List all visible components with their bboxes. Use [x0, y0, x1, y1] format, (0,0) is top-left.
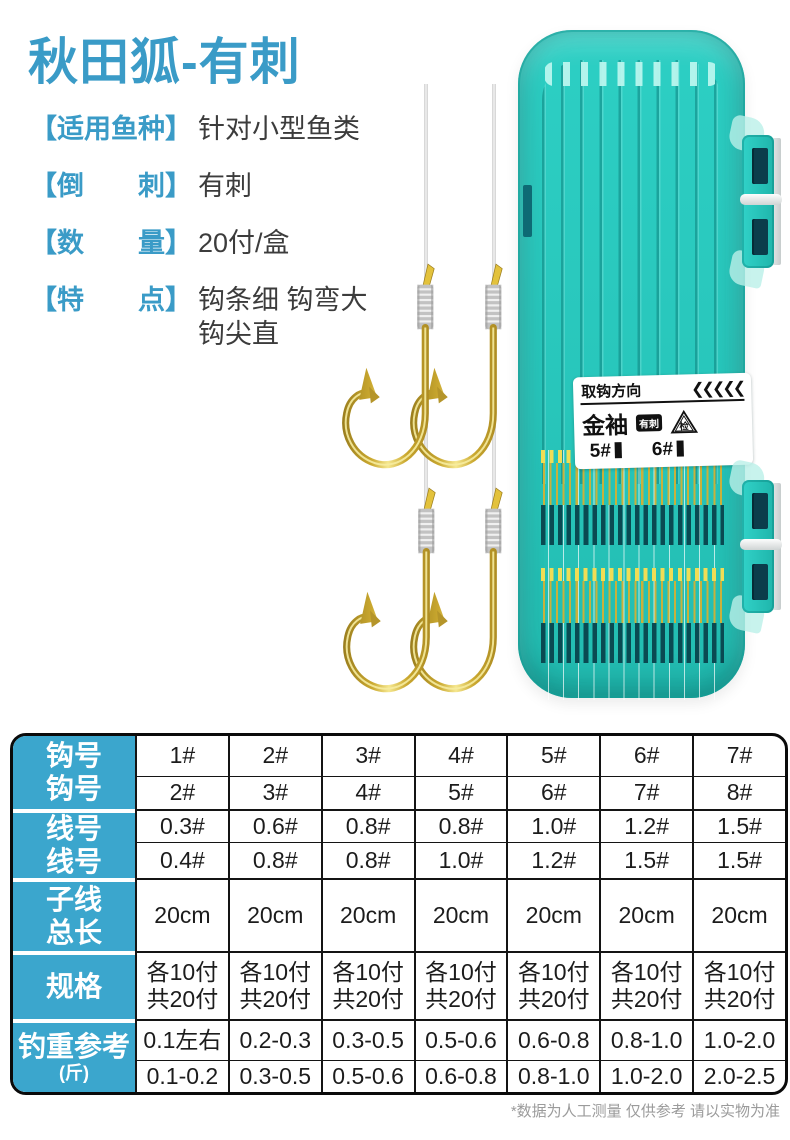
table-cell: 6# — [599, 736, 692, 776]
table-cell: 4# — [321, 776, 414, 809]
table-cell: 3# — [321, 736, 414, 776]
table-cell: 各10付 共20付 — [135, 951, 228, 1019]
spec-label: 【特 点】 — [30, 283, 192, 317]
spec-value: 20付/盒 — [198, 226, 290, 260]
table-cell: 20cm — [414, 878, 507, 951]
clip-pin — [740, 194, 782, 205]
table-cell: 1.5# — [692, 809, 785, 842]
size-bar-icon — [615, 442, 622, 458]
table-cell: 0.4# — [135, 842, 228, 878]
row-header: 子线总长 — [13, 878, 135, 951]
table-cell: 2# — [135, 776, 228, 809]
table-cell: 20cm — [599, 878, 692, 951]
clip-slot — [752, 219, 768, 255]
product-spec-sheet: 秋田狐-有刺 【适用鱼种】 针对小型鱼类 【倒 刺】 有刺 【数 量】 20付/… — [0, 0, 790, 1140]
size-6: 6# — [652, 438, 685, 461]
table-cell: 2.0-2.5 — [692, 1060, 785, 1092]
table-cell: 0.8# — [228, 842, 321, 878]
table-cell: 0.6-0.8 — [506, 1019, 599, 1060]
table-cell: 7# — [692, 736, 785, 776]
barbed-badge: 有刺 — [636, 414, 662, 432]
table-cell: 3# — [228, 776, 321, 809]
table-cell: 8# — [692, 776, 785, 809]
table-cell: 0.1-0.2 — [135, 1060, 228, 1092]
table-cell: 各10付 共20付 — [228, 951, 321, 1019]
table-cell: 0.2-0.3 — [228, 1019, 321, 1060]
fishing-hook-illustration — [336, 262, 436, 477]
row-header: 规格 — [13, 951, 135, 1019]
spec-label: 【数 量】 — [30, 226, 192, 260]
hook-slots — [540, 623, 724, 663]
table-cell: 1.0-2.0 — [599, 1060, 692, 1092]
table-cell: 各10付 共20付 — [599, 951, 692, 1019]
hook-box-illustration: 取钩方向 ❮❮❮❮❮ 金袖 有刺 检 5# 6# — [518, 30, 745, 698]
table-cell: 1.5# — [599, 842, 692, 878]
hook-box-pins — [544, 62, 719, 86]
table-cell: 各10付 共20付 — [321, 951, 414, 1019]
table-cell: 0.3# — [135, 809, 228, 842]
table-cell: 4# — [414, 736, 507, 776]
box-clip-bottom — [742, 480, 782, 613]
spec-row-features: 【特 点】 钩条细 钩弯大 钩尖直 — [30, 283, 368, 351]
spec-row-quantity: 【数 量】 20付/盒 — [30, 226, 368, 260]
table-cell: 20cm — [692, 878, 785, 951]
table-cell: 0.6# — [228, 809, 321, 842]
table-cell: 1# — [135, 736, 228, 776]
table-cell: 1.5# — [692, 842, 785, 878]
table-cell: 各10付 共20付 — [692, 951, 785, 1019]
table-cell: 0.1左右 — [135, 1019, 228, 1060]
table-cell: 各10付 共20付 — [414, 951, 507, 1019]
fishing-hook-illustration — [337, 486, 437, 701]
label-brand-row: 金袖 有刺 检 — [581, 401, 746, 441]
table-cell: 0.3-0.5 — [228, 1060, 321, 1092]
clip-slot — [752, 564, 768, 600]
spec-list: 【适用鱼种】 针对小型鱼类 【倒 刺】 有刺 【数 量】 20付/盒 【特 点】… — [30, 112, 368, 374]
table-cell: 0.3-0.5 — [321, 1019, 414, 1060]
row-header: 线号线号 — [13, 809, 135, 878]
clip-pin — [740, 539, 782, 550]
svg-text:检: 检 — [679, 420, 689, 431]
table-cell: 0.5-0.6 — [321, 1060, 414, 1092]
table-cell: 各10付 共20付 — [506, 951, 599, 1019]
spec-value: 有刺 — [198, 169, 252, 203]
hook-shanks — [540, 463, 724, 505]
clip-slot — [752, 148, 768, 184]
table-cell: 20cm — [321, 878, 414, 951]
spec-table-grid: 钩号钩号1#2#3#4#5#6#7#2#3#4#5#6#7#8#线号线号0.3#… — [13, 736, 785, 1092]
table-cell: 0.8# — [414, 809, 507, 842]
hook-spade-tops — [540, 568, 724, 581]
table-cell: 20cm — [135, 878, 228, 951]
table-cell: 0.8-1.0 — [506, 1060, 599, 1092]
table-cell: 2# — [228, 736, 321, 776]
left-arrows-icon: ❮❮❮❮❮ — [691, 377, 744, 398]
spec-row-barb: 【倒 刺】 有刺 — [30, 169, 368, 203]
spec-label: 【适用鱼种】 — [30, 112, 192, 146]
box-product-label: 取钩方向 ❮❮❮❮❮ 金袖 有刺 检 5# 6# — [573, 373, 753, 470]
table-cell: 0.8# — [321, 842, 414, 878]
size-bar-icon — [677, 440, 684, 456]
product-title: 秋田狐-有刺 — [28, 22, 301, 94]
table-cell: 1.0# — [506, 809, 599, 842]
table-cell: 1.2# — [599, 809, 692, 842]
table-cell: 1.2# — [506, 842, 599, 878]
hook-slots — [540, 505, 724, 545]
clip-slot — [752, 493, 768, 529]
table-cell: 0.5-0.6 — [414, 1019, 507, 1060]
size-5: 5# — [589, 440, 622, 463]
label-direction-text: 取钩方向 — [581, 380, 642, 403]
label-sizes-row: 5# 6# — [581, 437, 746, 464]
stored-hooks-row-2 — [540, 568, 724, 663]
footer-disclaimer: *数据为人工测量 仅供参考 请以实物为准 — [511, 1100, 780, 1121]
hook-shanks — [540, 581, 724, 623]
table-cell: 20cm — [228, 878, 321, 951]
table-cell: 0.8# — [321, 809, 414, 842]
table-cell: 7# — [599, 776, 692, 809]
table-cell: 5# — [414, 776, 507, 809]
table-cell: 6# — [506, 776, 599, 809]
box-clip-top — [742, 135, 782, 268]
row-header: 钩号钩号 — [13, 736, 135, 809]
table-cell: 1.0# — [414, 842, 507, 878]
label-brand: 金袖 — [582, 406, 629, 441]
spec-value: 针对小型鱼类 — [198, 112, 360, 146]
table-cell: 0.6-0.8 — [414, 1060, 507, 1092]
table-cell: 0.8-1.0 — [599, 1019, 692, 1060]
table-cell: 20cm — [506, 878, 599, 951]
spec-table: 钩号钩号1#2#3#4#5#6#7#2#3#4#5#6#7#8#线号线号0.3#… — [10, 733, 788, 1095]
inspection-triangle-icon: 检 — [670, 409, 699, 435]
table-cell: 5# — [506, 736, 599, 776]
hook-box-side-notch — [523, 185, 532, 237]
spec-row-fish-type: 【适用鱼种】 针对小型鱼类 — [30, 112, 368, 146]
spec-label: 【倒 刺】 — [30, 169, 192, 203]
row-header: 钓重参考(斤) — [13, 1019, 135, 1092]
table-cell: 1.0-2.0 — [692, 1019, 785, 1060]
